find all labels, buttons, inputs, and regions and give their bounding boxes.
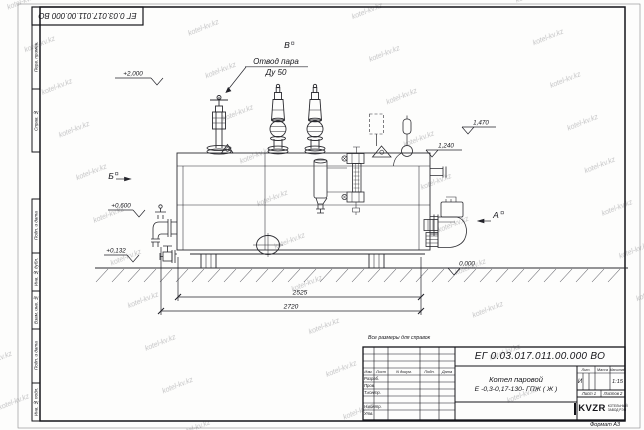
kvzr-logo-text: KVZR — [578, 403, 605, 414]
row-tkontr: Т.контр. — [364, 389, 388, 396]
col-header-list: Лист — [374, 368, 388, 375]
drawing-canvas: Отвод пара Ду 50 В Б А +2,000 1,470 1,24… — [0, 0, 644, 430]
stamp-podp-data-2: Подп. и дата — [32, 329, 40, 383]
row-razrab: Разраб. — [364, 375, 388, 382]
col-header-izm: Изм. — [363, 368, 374, 375]
col-header-data: Дата — [439, 368, 455, 375]
row-prov: Пров. — [364, 382, 388, 389]
stamp-inv-podl: Инв. № подл. — [32, 383, 40, 421]
logo-subtitle-2: ЗАВОД РЭП — [608, 409, 628, 413]
sheet-number: Лист 1 — [577, 390, 601, 397]
stamp-vzam-inv: Взам. инв. № — [32, 291, 40, 329]
kvzr-logo-icon — [574, 403, 576, 415]
stamp-podp-data-1: Подп. и дата — [32, 199, 40, 253]
col-header-dokum: N докум. — [388, 368, 420, 375]
sheets-total: Листов 2 — [601, 390, 625, 397]
litera-value: И — [577, 373, 583, 390]
massa-header: Масса — [595, 366, 610, 373]
format-label: Формат А3 — [583, 421, 627, 429]
reference-note: Все размеры для справок — [368, 335, 430, 341]
row-utv: Утв. — [364, 410, 388, 417]
top-designation: ЕГ 0.03.017.011.00.000 ВО — [32, 7, 143, 25]
drawing-sheet: Отвод пара Ду 50 В Б А +2,000 1,470 1,24… — [0, 0, 644, 430]
col-header-podp: Подп. — [420, 368, 439, 375]
product-name-line1: Котел паровой — [489, 375, 543, 384]
title-designation: ЕГ 0.03.017.011.00.000 ВО — [457, 348, 623, 365]
product-name-line2: Е -0,3-0,17-130- ГПЖ ( Ж ) — [475, 386, 558, 393]
stamp-sprav-no: Справ. № — [32, 89, 40, 152]
stamp-inv-dubl: Инв. № дубл. — [32, 253, 40, 291]
watermark-layer — [0, 0, 644, 430]
stamp-perv-primen: Перв. примен. — [32, 25, 40, 89]
lit-header: Лит. — [577, 366, 595, 373]
scale-value: 1:15 — [610, 373, 625, 390]
company-logo: KVZR КОТЕЛЬНЫЙ ЗАВОД РЭП — [577, 397, 625, 420]
masshtab-header: Масштаб — [610, 366, 625, 373]
row-nkontr: Н.контр. — [364, 403, 388, 410]
